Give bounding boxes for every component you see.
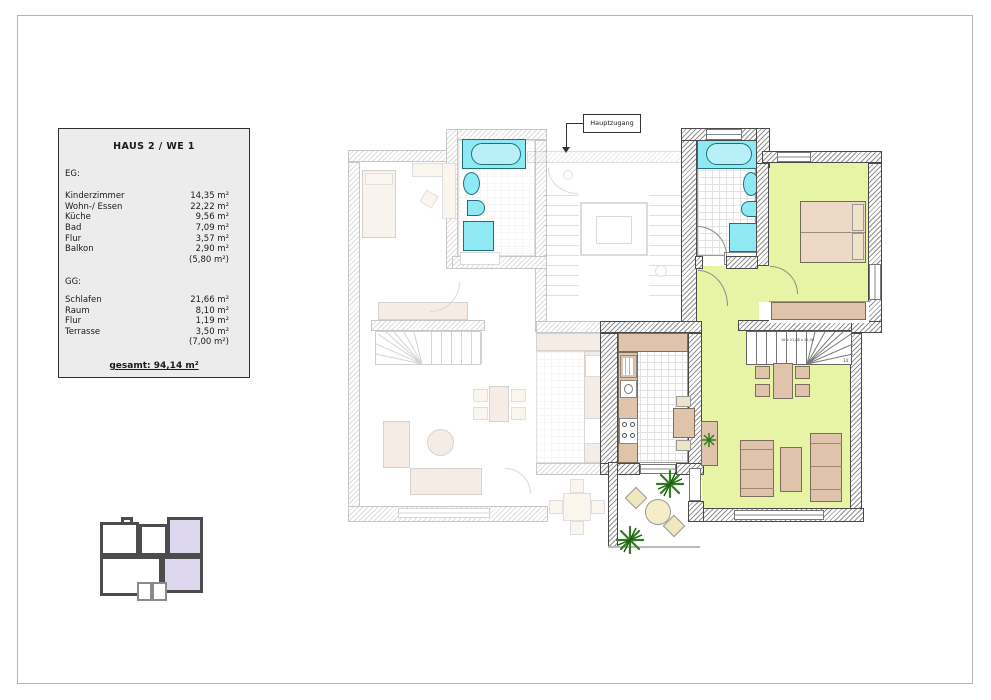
column	[655, 265, 667, 277]
desk	[442, 163, 456, 219]
kitchen-table	[673, 408, 695, 438]
wall-segment	[681, 128, 697, 332]
chair	[473, 389, 488, 402]
window	[777, 152, 811, 162]
keyplan-box-highlight	[162, 556, 203, 593]
legend-rows-gg: Schlafen21,66 m²Raum8,10 m²Flur1,19 m²Te…	[59, 295, 249, 348]
wall-segment	[600, 333, 618, 473]
stairs: 16 x 21,88 x 25,00 14	[746, 331, 852, 365]
legend-box: HAUS 2 / WE 1 EG: Kinderzimmer14,35 m²Wo…	[58, 128, 250, 378]
keyplan-box	[137, 582, 152, 601]
plant-icon	[614, 524, 646, 556]
plant-icon	[654, 468, 686, 500]
sofa	[810, 433, 842, 502]
fridge	[585, 355, 601, 377]
keyplan	[100, 516, 206, 602]
chair	[755, 384, 770, 397]
stair-dimension-note: 16 x 21,88 x 25,00	[781, 338, 814, 342]
sideboard	[378, 302, 468, 320]
window	[398, 508, 490, 518]
stool	[676, 396, 691, 407]
double-bed	[800, 201, 866, 263]
sofa	[410, 468, 482, 495]
wall-segment	[600, 321, 702, 333]
pillow	[852, 233, 864, 260]
core-stairs	[649, 195, 683, 305]
sink	[463, 172, 480, 195]
stool	[676, 440, 691, 451]
chair	[591, 500, 605, 514]
keyplan-box	[152, 582, 167, 601]
dining-table	[773, 363, 793, 399]
wall-segment	[726, 256, 758, 269]
sofa	[383, 421, 410, 468]
wall-segment	[536, 463, 610, 475]
wall-segment	[371, 320, 485, 331]
wall-segment	[536, 321, 610, 333]
entrance-leader-h	[566, 123, 583, 124]
chair	[549, 500, 563, 514]
legend-section-label-eg: EG:	[65, 169, 249, 180]
entrance-arrow	[562, 147, 570, 153]
column	[563, 170, 573, 180]
elevator-cab	[596, 216, 632, 244]
legend-row: Küche9,56 m²	[59, 212, 249, 223]
chair	[473, 407, 488, 420]
terrace-door	[689, 468, 701, 501]
legend-row: Wohn-/ Essen22,22 m²	[59, 202, 249, 213]
legend-row: Balkon2,90 m²	[59, 244, 249, 255]
chair	[511, 407, 526, 420]
core-stairs	[543, 195, 579, 305]
keyplan-box	[100, 522, 139, 556]
dining-table	[489, 386, 509, 422]
plant-icon	[701, 432, 717, 448]
stove	[619, 418, 638, 444]
legend-row: (5,80 m²)	[59, 255, 249, 266]
washing-machine	[729, 223, 758, 252]
wall-segment	[600, 463, 640, 475]
coffee-table	[780, 447, 802, 492]
legend-total: gesamt: 94,14 m²	[59, 361, 249, 372]
hallway-room	[756, 266, 770, 302]
keyplan-box	[139, 524, 168, 556]
entrance-label: Hauptzugang	[583, 114, 641, 133]
chair	[570, 479, 584, 493]
window	[706, 129, 742, 140]
chair	[511, 389, 526, 402]
legend-row: Bad7,09 m²	[59, 223, 249, 234]
wall-segment	[688, 501, 704, 522]
bathtub	[462, 139, 526, 169]
legend-row: Raum8,10 m²	[59, 306, 249, 317]
legend-row: Schlafen21,66 m²	[59, 295, 249, 306]
washing-machine	[463, 221, 494, 251]
entrance-leader-v	[566, 123, 567, 148]
toilet	[467, 200, 485, 216]
legend-row: (7,00 m²)	[59, 337, 249, 348]
legend-section-label-gg: GG:	[65, 277, 249, 288]
legend-row: Flur3,57 m²	[59, 234, 249, 245]
chair	[795, 366, 810, 379]
legend-title: HAUS 2 / WE 1	[59, 129, 249, 153]
keyplan-box-highlight	[167, 517, 203, 556]
stair-step-label: 14	[843, 358, 848, 363]
chair	[795, 384, 810, 397]
pillow	[365, 173, 393, 185]
terrace-table	[563, 493, 591, 521]
wall-segment	[527, 151, 685, 163]
chair	[570, 521, 584, 535]
round-table	[427, 429, 454, 456]
fridge	[620, 355, 637, 378]
kitchen-counter	[618, 333, 688, 352]
window	[869, 264, 881, 300]
bathtub	[697, 139, 757, 169]
kitchen-counter	[536, 333, 602, 351]
stairs	[375, 331, 481, 365]
sofa	[740, 440, 774, 497]
wall-segment	[695, 256, 703, 269]
wall-segment	[348, 162, 360, 514]
legend-row: Kinderzimmer14,35 m²	[59, 191, 249, 202]
floor-plan-page: HAUS 2 / WE 1 EG: Kinderzimmer14,35 m²Wo…	[0, 0, 991, 700]
bath-cabinet	[460, 252, 500, 265]
wall-segment	[868, 163, 882, 333]
legend-rows-eg: Kinderzimmer14,35 m²Wohn-/ Essen22,22 m²…	[59, 191, 249, 265]
wall-segment	[348, 150, 458, 162]
pillow	[852, 204, 864, 231]
legend-row: Flur1,19 m²	[59, 316, 249, 327]
wall-segment	[756, 163, 769, 266]
kitchen-floor	[536, 351, 586, 463]
kitchen-sink	[620, 380, 637, 398]
legend-row: Terrasse3,50 m²	[59, 327, 249, 338]
window	[734, 510, 824, 520]
chair	[755, 366, 770, 379]
sideboard	[771, 302, 866, 320]
